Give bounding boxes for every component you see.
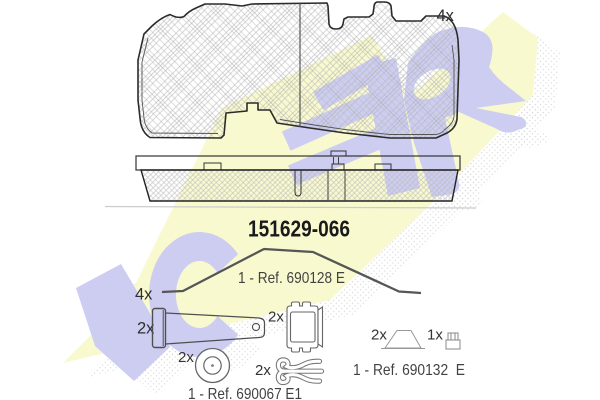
svg-text:1 - Ref. 690132 E: 1 - Ref. 690132 E bbox=[353, 362, 465, 379]
svg-text:1 - Ref. 690128 E: 1 - Ref. 690128 E bbox=[238, 270, 345, 287]
svg-text:2x: 2x bbox=[371, 327, 387, 344]
svg-text:2x: 2x bbox=[268, 309, 284, 326]
svg-text:2x: 2x bbox=[178, 349, 194, 366]
svg-text:2x: 2x bbox=[255, 362, 271, 379]
svg-text:151629-066: 151629-066 bbox=[248, 216, 350, 242]
svg-text:1x: 1x bbox=[427, 327, 443, 344]
svg-text:4x: 4x bbox=[135, 286, 153, 304]
svg-text:1 - Ref. 690067 E1: 1 - Ref. 690067 E1 bbox=[188, 386, 302, 400]
svg-text:4x: 4x bbox=[437, 7, 455, 25]
